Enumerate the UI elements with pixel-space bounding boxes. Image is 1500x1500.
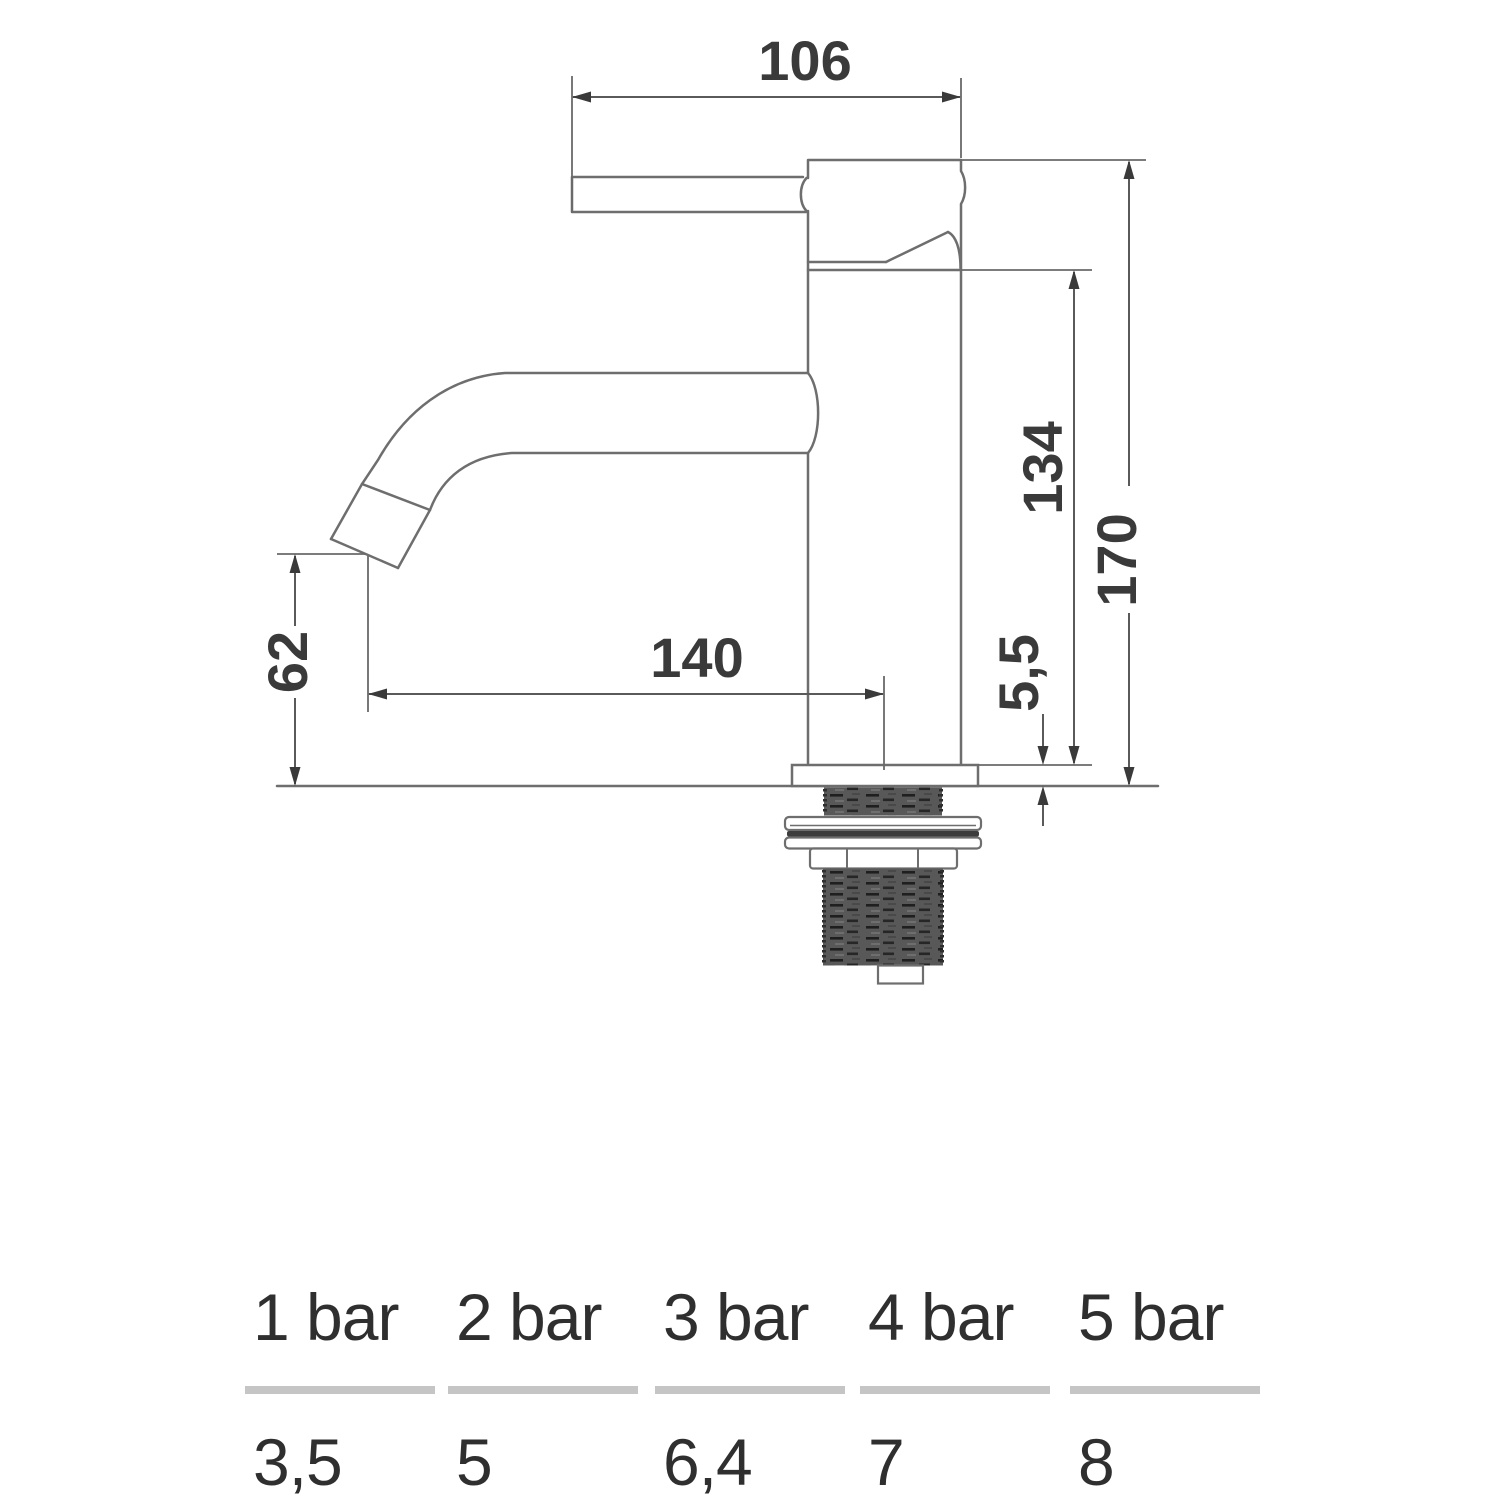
cartridge-diagonal — [886, 232, 948, 262]
arrow-134-bottom — [1069, 746, 1080, 765]
pressure-column-4: 4 bar 7 — [860, 1283, 1055, 1498]
column-divider — [245, 1386, 435, 1394]
mounting-nut — [810, 849, 957, 869]
pressure-header: 3 bar — [655, 1283, 850, 1352]
spout-inner-edge — [398, 453, 808, 568]
column-divider — [448, 1386, 638, 1394]
pressure-header: 4 bar — [860, 1283, 1055, 1352]
pressure-column-2: 2 bar 5 — [448, 1283, 643, 1498]
flow-value: 8 — [1070, 1428, 1265, 1497]
dim-label-62: 62 — [256, 631, 319, 693]
threaded-shank — [823, 869, 943, 966]
arrow-5-5-upper — [1038, 746, 1049, 765]
dim-label-134: 134 — [1011, 421, 1074, 514]
threaded-stub-upper — [824, 788, 942, 816]
supply-tailpiece — [878, 966, 923, 984]
lock-washer — [785, 838, 981, 849]
pressure-column-1: 1 bar 3,5 — [245, 1283, 440, 1498]
flow-value: 7 — [860, 1428, 1055, 1497]
arrow-140-left — [368, 689, 387, 700]
dim-label-170: 170 — [1085, 513, 1148, 606]
arrow-140-right — [865, 689, 884, 700]
arrow-62-top — [290, 554, 301, 573]
flow-value: 6,4 — [655, 1428, 850, 1497]
cartridge-curve — [948, 232, 961, 268]
pressure-header: 5 bar — [1070, 1283, 1265, 1352]
pressure-header: 2 bar — [448, 1283, 643, 1352]
dim-label-5-5: 5,5 — [987, 634, 1050, 712]
column-divider — [1070, 1386, 1260, 1394]
arrow-5-5-lower — [1038, 786, 1049, 805]
column-divider — [655, 1386, 845, 1394]
flange-washer — [785, 817, 981, 830]
flow-value: 5 — [448, 1428, 643, 1497]
pressure-flow-table: 1 bar 3,5 2 bar 5 3 bar 6,4 4 bar 7 5 ba… — [0, 0, 1500, 230]
spout-outer-edge — [331, 373, 808, 539]
column-divider — [860, 1386, 1050, 1394]
aerator-joint-line — [362, 484, 430, 510]
arrow-62-bottom — [290, 767, 301, 786]
arrow-170-bottom — [1124, 767, 1135, 786]
pressure-column-5: 5 bar 8 — [1070, 1283, 1265, 1498]
flow-value: 3,5 — [245, 1428, 440, 1497]
base-plate — [792, 765, 978, 786]
spout-endcap-arc — [808, 373, 818, 453]
pressure-column-3: 3 bar 6,4 — [655, 1283, 850, 1498]
rubber-gasket — [787, 831, 979, 837]
arrow-134-top — [1069, 270, 1080, 289]
pressure-header: 1 bar — [245, 1283, 440, 1352]
dim-label-140: 140 — [650, 626, 743, 689]
mounting-hardware — [785, 765, 981, 984]
